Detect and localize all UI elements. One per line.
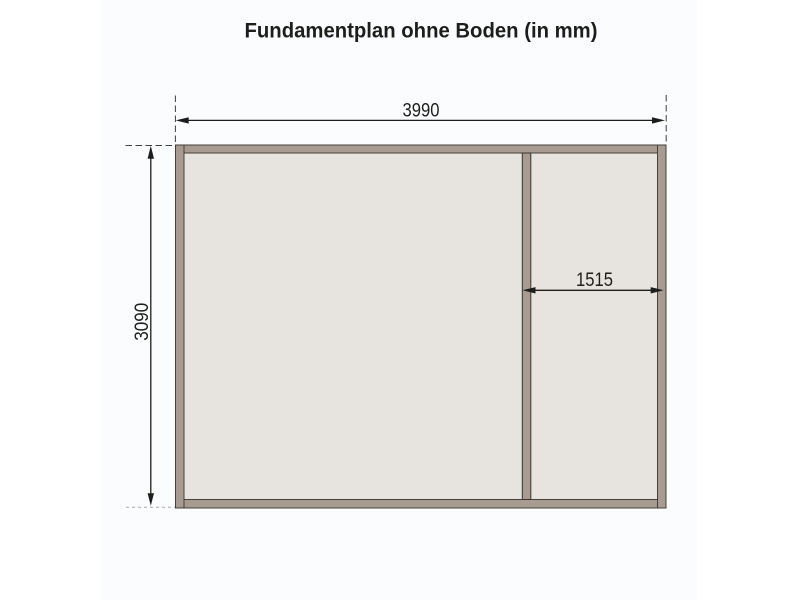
svg-text:Fundamentplan ohne Boden (in m: Fundamentplan ohne Boden (in mm) xyxy=(245,20,598,43)
svg-text:3090: 3090 xyxy=(132,303,153,341)
svg-text:1515: 1515 xyxy=(576,270,613,291)
svg-text:3990: 3990 xyxy=(403,101,440,122)
